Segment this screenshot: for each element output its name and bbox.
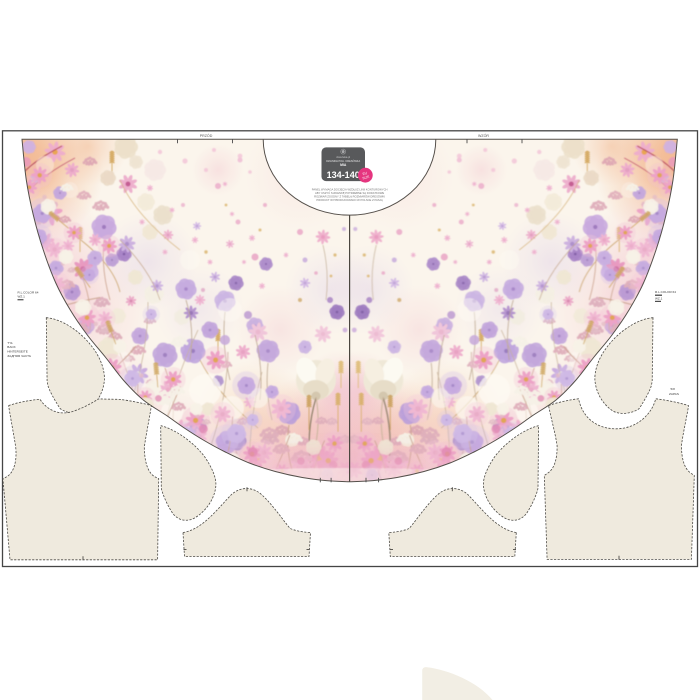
svg-text:MIA: MIA [340,163,347,167]
svg-text:5/8: 5/8 [671,387,676,391]
svg-text:R.L.COLOR 64: R.L.COLOR 64 [18,290,39,294]
svg-text:HINTERSEITE: HINTERSEITE [7,350,27,354]
svg-text:WZÓR: WZÓR [478,133,489,138]
svg-text:ZAPAS: ZAPAS [669,392,679,396]
svg-text:WZ.1: WZ.1 [655,296,663,300]
svg-text:WZ.1: WZ.1 [18,295,26,299]
svg-text:ЗАДНЯЯ ЧАСТЬ: ЗАДНЯЯ ЧАСТЬ [7,354,31,358]
svg-text:DZIANINA POLI. DRESÓWKA: DZIANINA POLI. DRESÓWKA [326,160,360,163]
svg-text:PRZÓD: PRZÓD [200,133,213,138]
svg-text:TYŁ: TYŁ [7,341,13,345]
svg-text:134-140: 134-140 [327,170,360,180]
svg-text:R.L.COLOR 64: R.L.COLOR 64 [655,290,676,294]
svg-text:BACK: BACK [7,345,16,349]
